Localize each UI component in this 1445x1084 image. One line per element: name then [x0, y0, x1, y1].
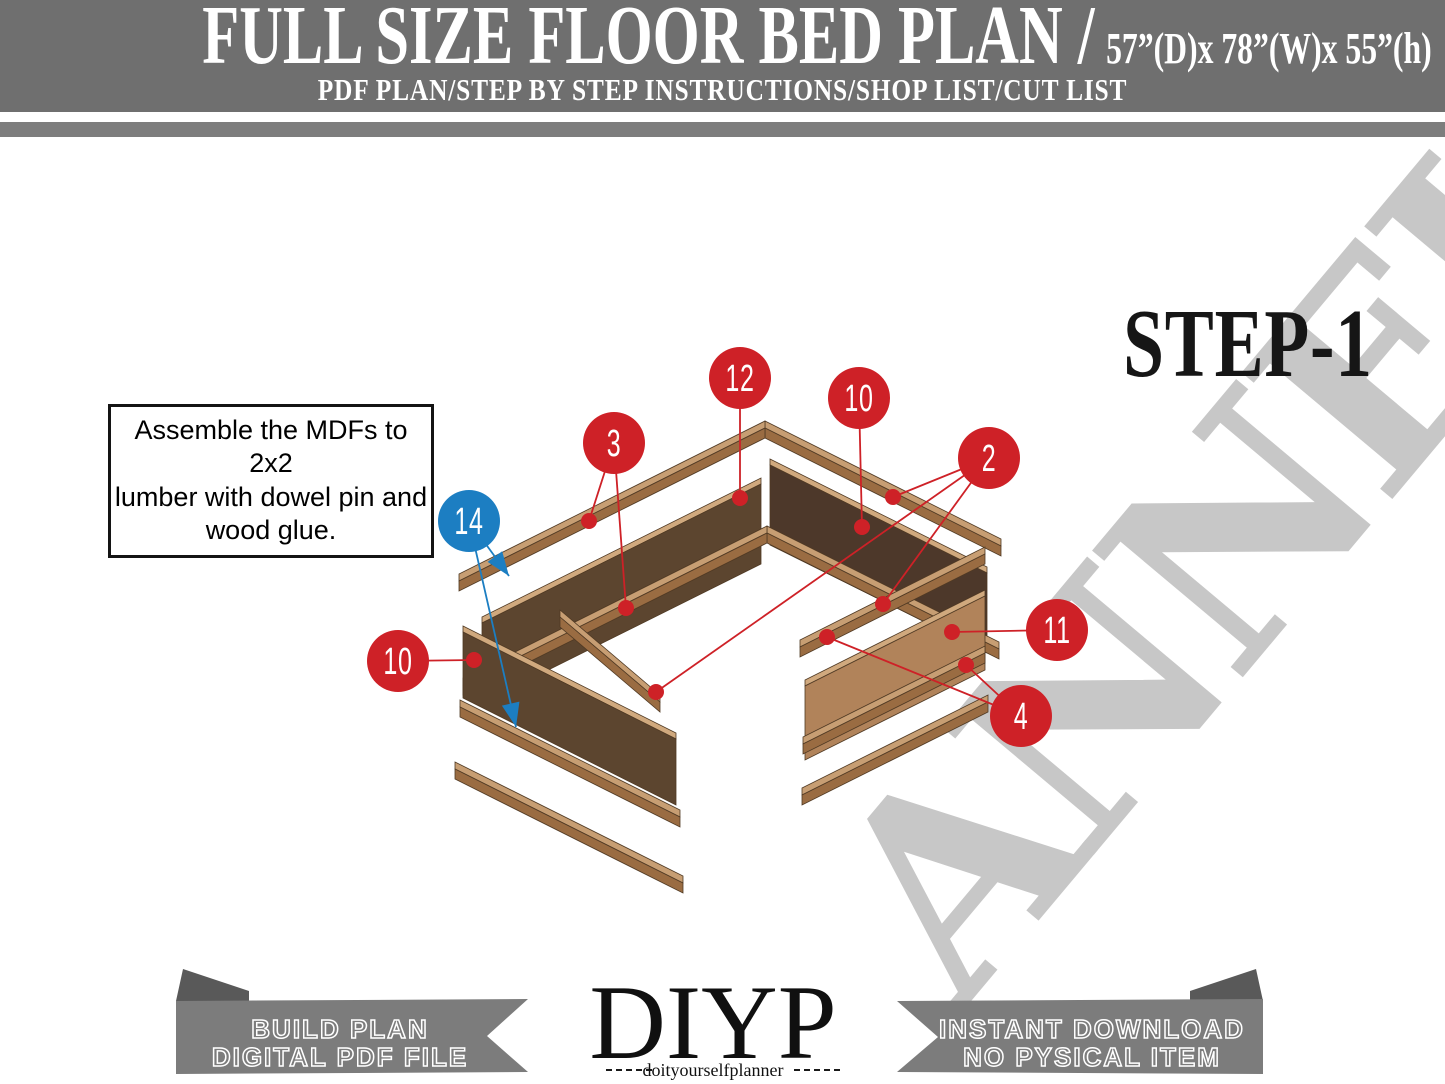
- logo-tagline: doityourselfplanner: [643, 1060, 784, 1080]
- page: ANNEL 1210321410114 BUILD PLAN DIGITAL P…: [0, 0, 1445, 1084]
- callout-label-10: 10: [844, 377, 873, 419]
- leader-dot: [618, 600, 634, 616]
- leader-dot: [854, 519, 870, 535]
- right-ribbon: INSTANT DOWNLOAD NO PYSICAL ITEM: [897, 969, 1263, 1074]
- right-ribbon-line1: INSTANT DOWNLOAD: [939, 1014, 1245, 1044]
- step-title: STEP-1: [1123, 295, 1373, 393]
- leader-dot: [885, 489, 901, 505]
- wood-pieces-layer: [455, 421, 1001, 893]
- left-ribbon-line1: BUILD PLAN: [251, 1014, 428, 1044]
- leader-dot: [819, 629, 835, 645]
- left-ribbon-fold: [176, 969, 249, 1001]
- header-divider-bar: [0, 122, 1445, 137]
- callout-label-3: 3: [607, 422, 622, 464]
- right-ribbon-line2: NO PYSICAL ITEM: [963, 1042, 1221, 1072]
- instruction-box: Assemble the MDFs to 2x2 lumber with dow…: [108, 404, 434, 558]
- callout-label-12: 12: [725, 357, 754, 399]
- left-ribbon: BUILD PLAN DIGITAL PDF FILE: [176, 969, 528, 1074]
- callout-label-14: 14: [454, 500, 483, 542]
- diyp-logo: DIYP doityourselfplanner: [589, 964, 840, 1081]
- right-ribbon-fold: [1190, 969, 1263, 1001]
- header-banner: FULL SIZE FLOOR BED PLAN /57”(D)x 78”(W)…: [0, 0, 1445, 112]
- header-subtitle: PDF PLAN/STEP BY STEP INSTRUCTIONS/SHOP …: [130, 72, 1315, 108]
- leader-dot: [944, 624, 960, 640]
- left-ribbon-line2: DIGITAL PDF FILE: [212, 1042, 468, 1072]
- instruction-line: lumber with dowel pin and: [113, 481, 429, 514]
- dimensions-label: 57”(D)x 78”(W)x 55”(h): [1106, 24, 1432, 73]
- leader-dot: [958, 657, 974, 673]
- instruction-line: Assemble the MDFs to 2x2: [113, 414, 429, 481]
- instruction-line: wood glue.: [113, 514, 429, 547]
- callout-label-4: 4: [1014, 695, 1029, 737]
- leader-dot: [732, 490, 748, 506]
- header-title-line: FULL SIZE FLOOR BED PLAN /57”(D)x 78”(W)…: [202, 0, 1242, 80]
- leader-dot: [466, 652, 482, 668]
- leader-dot: [875, 596, 891, 612]
- callout-label-11: 11: [1043, 609, 1070, 651]
- callout-label-10: 10: [383, 640, 412, 682]
- leader-dot: [581, 513, 597, 529]
- callout-label-2: 2: [982, 437, 997, 479]
- leader-dot: [648, 684, 664, 700]
- page-title: FULL SIZE FLOOR BED PLAN /: [202, 0, 1094, 82]
